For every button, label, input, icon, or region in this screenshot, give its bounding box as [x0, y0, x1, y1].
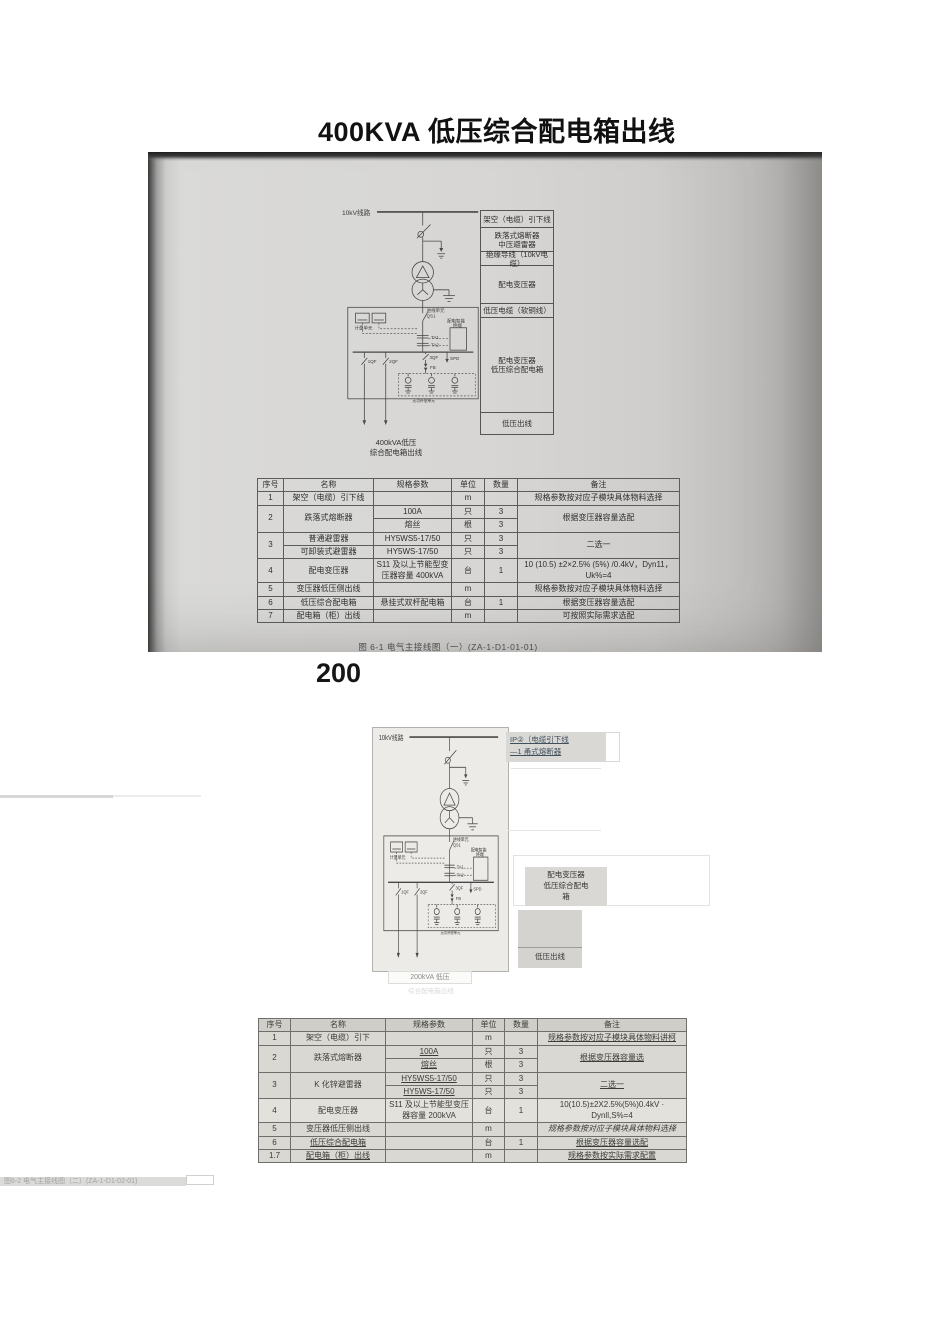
cell: 规格参数按实际需求配置 — [538, 1149, 687, 1162]
diagram2-bottom-label-faint: 综合配电箱出线 — [396, 985, 466, 995]
cell: 架空（电缆）引下 — [291, 1032, 386, 1045]
cell: 只 — [473, 1085, 505, 1098]
cell — [386, 1149, 473, 1162]
callout-line: IP②（电缆引下线 — [510, 734, 603, 746]
col-header: 单位 — [473, 1019, 505, 1032]
cell — [386, 1032, 473, 1045]
diagram2-callout-top: IP②（电缆引下线 —1 甬式熔断器 — [506, 732, 620, 762]
cell — [505, 1123, 538, 1136]
cell: 二选一 — [538, 1072, 687, 1099]
table-header-row: 序号 名称 规格参数 单位 数量 备注 — [259, 1019, 687, 1032]
page-edge-artifact — [113, 795, 201, 797]
cell — [386, 1136, 473, 1149]
diagram2-bottom-label: 200kVA 低压 — [388, 971, 472, 984]
cell: 规格参数按对应子模块具体物料选择 — [538, 1123, 687, 1136]
cell: 5 — [259, 1123, 291, 1136]
cell: 根 — [473, 1059, 505, 1072]
table-row: 2 跌落式熔断器 100A 只 3 根据变压器容量选 — [259, 1045, 687, 1058]
faint-artifact-line — [511, 768, 601, 769]
cell: 只 — [473, 1072, 505, 1085]
cell: 只 — [473, 1045, 505, 1058]
cell: m — [473, 1149, 505, 1162]
cell: 1.7 — [259, 1149, 291, 1162]
diagram2-lv-out-box: 低压出线 — [518, 910, 582, 968]
cell: K 化锌避雷器 — [291, 1072, 386, 1099]
table-row: 5 变压器低压侧出线 m 规格参数按对应子模块具体物料选择 — [259, 1123, 687, 1136]
col-header: 规格参数 — [386, 1019, 473, 1032]
cell — [505, 1032, 538, 1045]
col-header: 序号 — [259, 1019, 291, 1032]
wiring-diagram-2-svg — [377, 731, 505, 965]
cell: 变压器低压侧出线 — [291, 1123, 386, 1136]
col-header: 备注 — [538, 1019, 687, 1032]
photo-shading — [148, 152, 822, 652]
col-header: 数量 — [505, 1019, 538, 1032]
cell: S11 及以上节能型变压器容量 200kVA — [386, 1099, 473, 1123]
lv-out-label: 低压出线 — [518, 951, 582, 962]
cell: 规格参数按对应子模块具体物料讲柯 — [538, 1032, 687, 1045]
cell: 熔丝 — [386, 1059, 473, 1072]
page-title: 400KVA 低压综合配电箱出线 — [318, 110, 676, 149]
cell: 配电变压器 — [291, 1099, 386, 1123]
cell: 3 — [259, 1072, 291, 1099]
cell: 台 — [473, 1099, 505, 1123]
section-marker: 200 — [316, 658, 361, 689]
cell: 100A — [386, 1045, 473, 1058]
cell — [505, 1149, 538, 1162]
figure-caption-2-faint: 图6-2 电气主接线图（二）(ZA-1-D1-02-01) — [0, 1177, 186, 1186]
col-header: 名称 — [291, 1019, 386, 1032]
cell: 台 — [473, 1136, 505, 1149]
cell — [386, 1123, 473, 1136]
cell: 10(10.5)±2X2.5%(5%)0.4kV · Dynll,S%=4 — [538, 1099, 687, 1123]
faint-artifact-line — [508, 830, 601, 831]
cell: 6 — [259, 1136, 291, 1149]
cell: 根据变压器容量选配 — [538, 1136, 687, 1149]
cell: m — [473, 1123, 505, 1136]
page-edge-artifact — [0, 795, 113, 798]
cell: 1 — [505, 1099, 538, 1123]
cell: 根据变压器容量选 — [538, 1045, 687, 1072]
cell: HY5WS-17/50 — [386, 1085, 473, 1098]
cell: 低压综合配电箱 — [291, 1136, 386, 1149]
cell: HY5WS5-17/50 — [386, 1072, 473, 1085]
callout-line: —1 甬式熔断器 — [510, 746, 603, 758]
cell: 2 — [259, 1045, 291, 1072]
cell: 3 — [505, 1072, 538, 1085]
spec-table-2: 序号 名称 规格参数 单位 数量 备注 1 架空（电缆）引下 m 规格参数按对应… — [258, 1018, 687, 1163]
table-row: 1.7 配电箱（柜）出线 m 规格参数按实际需求配置 — [259, 1149, 687, 1162]
callout-mid-text: 配电变压器 低压综合配电 箱 — [544, 870, 589, 903]
divider — [518, 947, 582, 948]
cell: 3 — [505, 1059, 538, 1072]
cell: 跌落式熔断器 — [291, 1045, 386, 1072]
table-row: 4 配电变压器 S11 及以上节能型变压器容量 200kVA 台 1 10(10… — [259, 1099, 687, 1123]
cell: 4 — [259, 1099, 291, 1123]
main-wiring-diagram-2 — [372, 727, 509, 972]
table-row: 6 低压综合配电箱 台 1 根据变压器容量选配 — [259, 1136, 687, 1149]
cell: 1 — [505, 1136, 538, 1149]
cell: 3 — [505, 1085, 538, 1098]
book-photo: 架空（电缆）引下线 跌落式熔断器 中压避雷器 绝缘导线（10kV电缆） 配电变压… — [148, 152, 822, 652]
cell: m — [473, 1032, 505, 1045]
footer-artifact-box — [186, 1175, 214, 1185]
cell: 1 — [259, 1032, 291, 1045]
table-row: 1 架空（电缆）引下 m 规格参数按对应子模块具体物料讲柯 — [259, 1032, 687, 1045]
table-row: 3 K 化锌避雷器 HY5WS5-17/50 只 3 二选一 — [259, 1072, 687, 1085]
cell: 配电箱（柜）出线 — [291, 1149, 386, 1162]
diagram2-callout-top-label: IP②（电缆引下线 —1 甬式熔断器 — [507, 733, 606, 761]
cell: 3 — [505, 1045, 538, 1058]
diagram2-callout-mid-label: 配电变压器 低压综合配电 箱 — [525, 867, 607, 906]
